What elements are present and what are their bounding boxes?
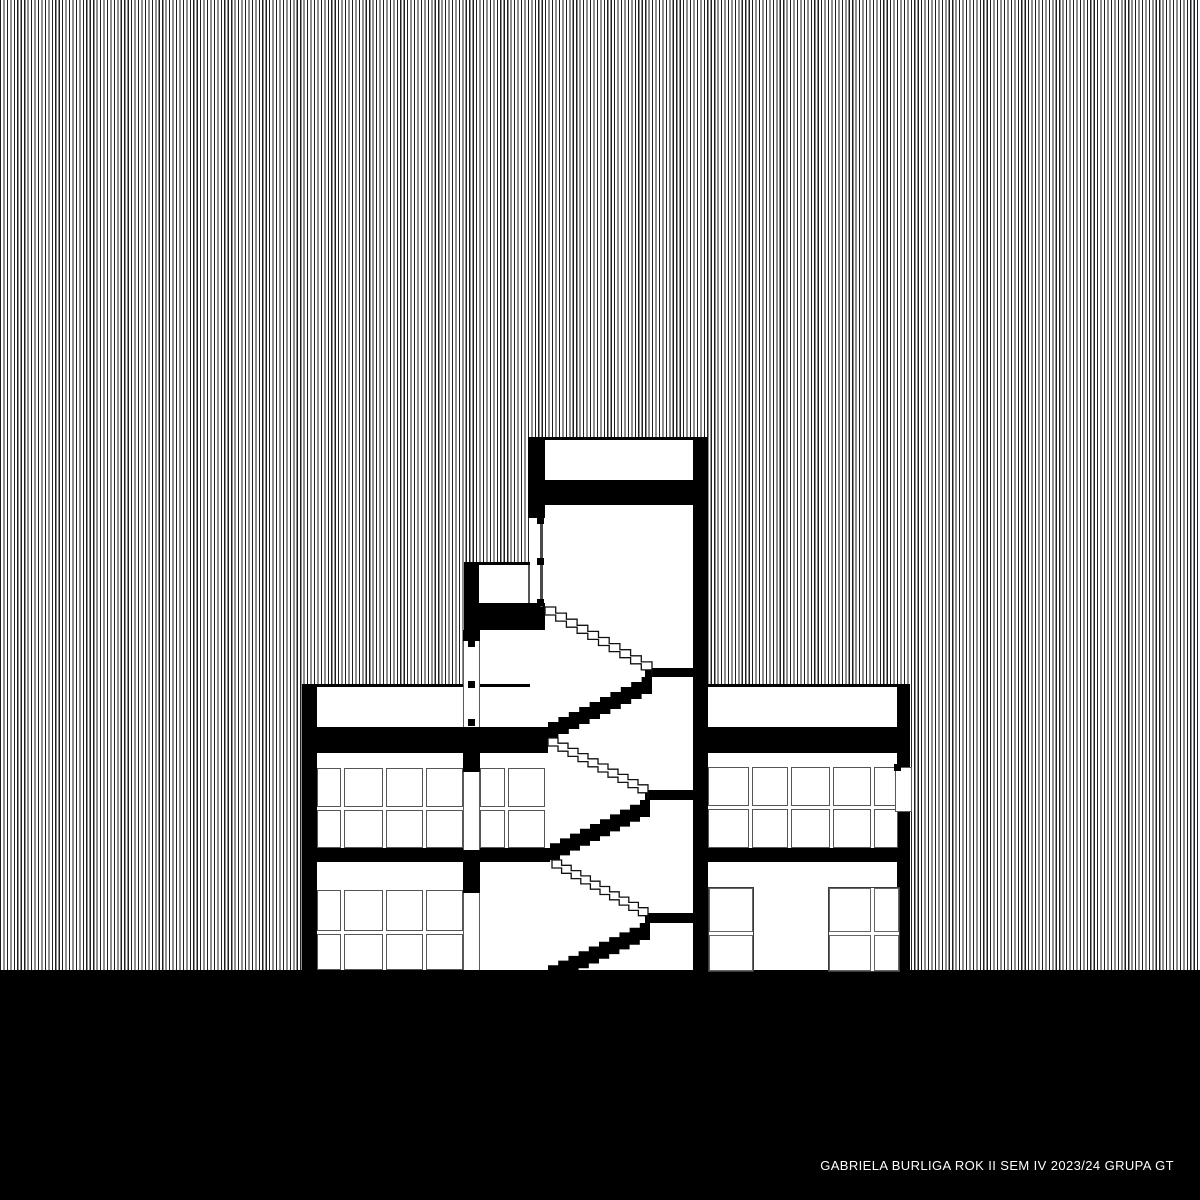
stair-landing <box>645 790 695 800</box>
title-block-caption: GABRIELA BURLIGA ROK II SEM IV 2023/24 G… <box>820 1158 1174 1173</box>
stair-flight-cut <box>548 923 650 987</box>
stair-landing <box>645 913 695 923</box>
stair-flight-cut <box>550 800 650 865</box>
stair-flight-elevation <box>552 860 648 921</box>
stair-flight-elevation <box>545 607 652 676</box>
stair-flight-cut <box>548 677 652 744</box>
section-drawing: GABRIELA BURLIGA ROK II SEM IV 2023/24 G… <box>0 0 1200 1200</box>
staircase-section <box>0 0 1200 1200</box>
stair-flight-elevation <box>548 738 648 798</box>
